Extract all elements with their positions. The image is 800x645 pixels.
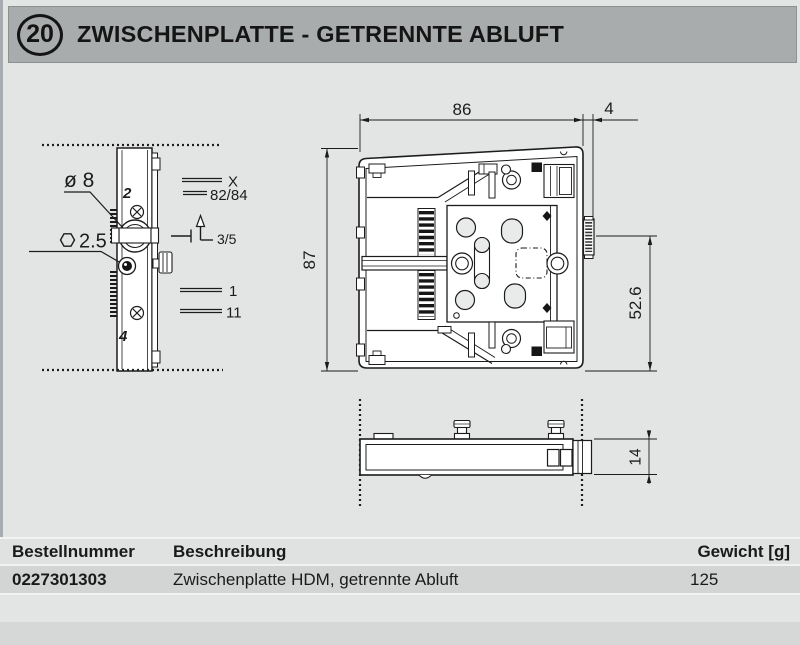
hex-screw-center (122, 261, 132, 271)
strip-tab-bottom (152, 351, 160, 363)
callout-1-label: 1 (229, 283, 237, 300)
cross-screw-top (131, 206, 144, 219)
screw-boss-left (452, 253, 473, 274)
callout-11: 11 (180, 305, 242, 322)
section-number: 20 (26, 20, 54, 49)
diameter-label: ø 8 (64, 169, 94, 192)
bore-slot-left (112, 228, 120, 243)
dimension-52-6: 52.6 (585, 236, 657, 371)
dimension-4: 4 (583, 99, 638, 217)
obround-top (502, 219, 523, 243)
obround-bottom (505, 284, 526, 308)
page-title: ZWISCHENPLATTE - GETRENNTE ABLUFT (77, 21, 564, 48)
callout-35-label: 3/5 (217, 231, 237, 247)
callout-11-label: 11 (226, 305, 242, 322)
end-window-left (548, 450, 560, 467)
dimension-87: 87 (300, 149, 358, 372)
knob-right (548, 421, 564, 440)
wall-clip (357, 167, 365, 178)
dim-52-6-value: 52.6 (626, 286, 645, 319)
footer-bar (0, 622, 800, 645)
callout-8284-label: 82/84 (210, 187, 248, 204)
section-header: 20 ZWISCHENPLATTE - GETRENNTE ABLUFT (8, 6, 797, 63)
section-number-badge: 20 (17, 14, 63, 56)
right-tab (584, 217, 595, 259)
wall-clip (357, 278, 365, 290)
hole-top-left (457, 218, 476, 237)
bottom-view: 14 (360, 399, 657, 506)
part-description: Zwischenplatte HDM, getrennte Abluft (173, 570, 672, 590)
hex-size-label: 2.5 (79, 231, 107, 253)
up-arrow-icon (197, 216, 205, 227)
table-header-row: Bestellnummer Beschreibung Gewicht [g] (0, 537, 800, 566)
front-view: 86 4 87 (300, 99, 657, 371)
hex-screw-glint (124, 263, 127, 266)
slide-arm (362, 257, 447, 271)
hex-leader (29, 252, 120, 263)
dimension-86: 86 (360, 100, 583, 152)
callout-8284: 82/84 (183, 187, 248, 204)
cross-screw-bottom (131, 307, 144, 320)
position-label-4: 4 (118, 328, 128, 345)
dumbbell-slot (475, 238, 490, 289)
left-step (374, 434, 393, 440)
column-beschreibung: Beschreibung (173, 542, 672, 562)
callout-1: 1 (180, 283, 237, 300)
bottom-bump (419, 475, 432, 478)
dim-86-value: 86 (453, 100, 472, 119)
position-label-2: 2 (122, 185, 132, 202)
wall-clip (357, 344, 365, 356)
hole-bottom-left (456, 291, 475, 310)
side-view: 2 4 ø 8 2.5 X 82/84 (29, 145, 248, 371)
order-number: 0227301303 (0, 570, 173, 590)
right-end (573, 441, 592, 474)
technical-drawing: 2 4 ø 8 2.5 X 82/84 (0, 62, 800, 538)
column-gewicht: Gewicht [g] (672, 542, 800, 562)
strip-tab-top (152, 158, 160, 170)
knob-left (454, 421, 470, 440)
wall-clip (357, 227, 365, 238)
weight-value: 125 (672, 570, 800, 590)
parts-table: Bestellnummer Beschreibung Gewicht [g] 0… (0, 537, 800, 626)
bore-slot (119, 228, 151, 243)
column-bestellnummer: Bestellnummer (0, 542, 173, 562)
dim-4-value: 4 (604, 99, 613, 118)
pilot-hole (454, 313, 460, 319)
dim-14-value: 14 (628, 448, 645, 466)
end-window-right (561, 450, 573, 467)
bore-slot-right (151, 228, 159, 243)
dimension-14: 14 (594, 430, 657, 484)
callout-35: 3/5 (171, 216, 237, 248)
dim-87-value: 87 (300, 251, 319, 270)
screw-boss-right (547, 253, 568, 274)
hexagon-icon (61, 234, 75, 246)
table-row: 0227301303 Zwischenplatte HDM, getrennte… (0, 566, 800, 595)
catalog-page: 20 ZWISCHENPLATTE - GETRENNTE ABLUFT (0, 0, 800, 645)
